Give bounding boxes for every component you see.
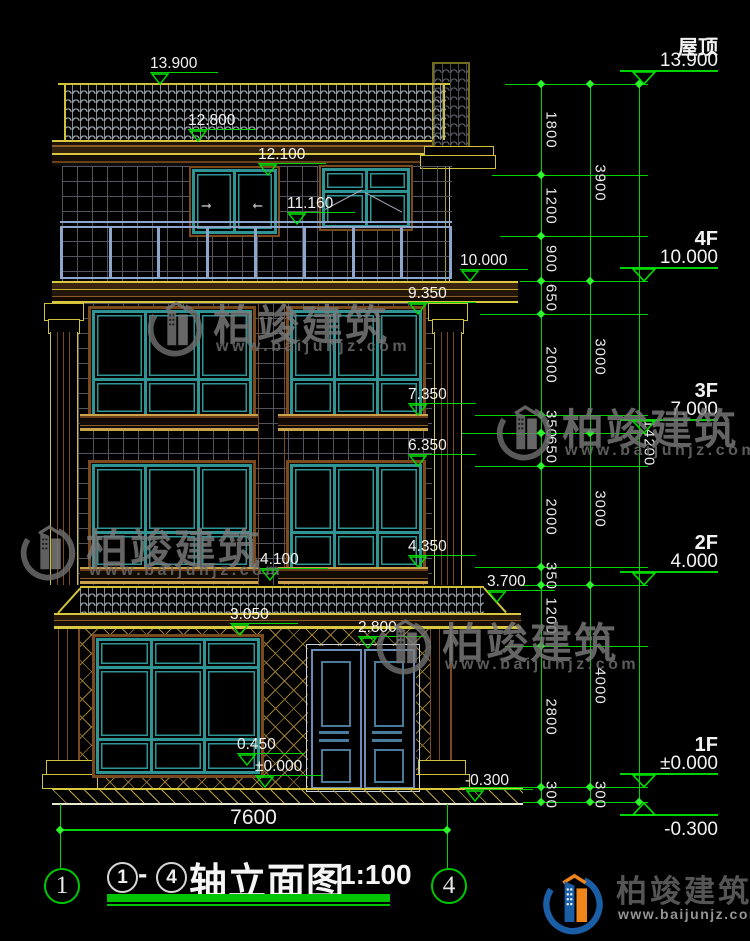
railing-post <box>109 228 112 278</box>
floor-elevation-value: 13.900 <box>660 50 718 72</box>
window-pane <box>99 641 150 666</box>
floor-elevation-value: -0.300 <box>664 819 718 841</box>
dimension-tick <box>537 171 545 179</box>
window-pane <box>336 467 376 531</box>
window-2f-left-glass <box>92 464 252 570</box>
window-pane <box>325 171 365 190</box>
footer-logo: 柏竣建筑 www.baijunjz.com <box>538 864 750 938</box>
window-pane <box>336 534 376 567</box>
dimension-label: 2000 <box>543 498 560 535</box>
window-pane <box>147 467 196 531</box>
spot-elevation-value: 12.100 <box>258 146 305 164</box>
window-3f-left <box>88 306 256 421</box>
spot-elevation-value: 13.900 <box>150 55 197 73</box>
slide-arrow-right-icon: ➞ <box>201 198 225 214</box>
spot-elevation-marker: 9.350 <box>408 285 480 315</box>
window-pane <box>99 741 150 771</box>
spot-elevation-marker: 13.900 <box>150 55 222 85</box>
dimension-extension-line <box>492 175 648 176</box>
level-triangle-icon <box>632 774 656 788</box>
railing-post <box>157 228 160 278</box>
window-3f-right-glass <box>290 310 422 417</box>
window-pane <box>95 381 144 414</box>
spot-elevation-marker: 7.350 <box>408 386 480 416</box>
spot-elevation-value: 3.050 <box>230 606 269 624</box>
watermark-url: www.baijunjz.com <box>565 442 750 460</box>
axis-bubble-right: 4 <box>431 868 467 904</box>
railing-top-rail <box>60 221 452 223</box>
level-triangle-icon <box>632 802 656 816</box>
railing-post <box>60 228 63 278</box>
title-underline-thick <box>107 894 390 902</box>
level-triangle-icon <box>632 268 656 282</box>
pilaster-1f-left <box>58 629 80 760</box>
window-pane <box>293 381 333 414</box>
railing-post <box>352 228 355 278</box>
dimension-label: 1800 <box>543 111 560 148</box>
spot-elevation-marker: 10.000 <box>460 252 532 282</box>
window-pane <box>200 534 249 567</box>
level-triangle-icon <box>288 213 306 225</box>
footer-brand: 柏竣建筑 <box>616 866 750 911</box>
window-pane <box>293 313 333 378</box>
level-triangle-icon <box>632 572 656 586</box>
spot-elevation-value: ±0.000 <box>255 758 302 776</box>
window-3f-right <box>286 306 426 421</box>
drawing-scale: 1:100 <box>340 859 412 891</box>
door-panel-upper <box>321 661 351 727</box>
door-panel-lower <box>374 749 404 783</box>
window-pane <box>293 467 333 531</box>
dimension-tick <box>586 277 594 285</box>
roof-pier <box>432 62 470 148</box>
level-triangle-icon <box>409 556 427 568</box>
roof-edge-left <box>64 85 66 140</box>
pilaster-1f-left-base2 <box>42 774 98 789</box>
dimension-tick <box>537 80 545 88</box>
axis-line-right <box>447 804 448 868</box>
window-1f-glass <box>96 638 260 774</box>
window-pane <box>147 534 196 567</box>
door-panel-band <box>372 731 402 734</box>
spot-elevation-marker: ±0.000 <box>255 758 327 788</box>
dimension-tick <box>537 642 545 650</box>
window-pane <box>200 381 249 414</box>
level-triangle-icon <box>189 130 207 142</box>
floor-level-marker: 屋顶13.900 <box>620 34 718 86</box>
spot-elevation-marker: 12.100 <box>258 146 330 176</box>
spot-elevation-marker: 3.050 <box>230 606 302 636</box>
spot-elevation-marker: 6.350 <box>408 437 480 467</box>
window-pane <box>206 641 257 666</box>
spot-elevation-value: 12.800 <box>188 112 235 130</box>
level-triangle-icon <box>632 71 656 85</box>
dimension-label: 2800 <box>543 698 560 735</box>
window-pane <box>147 381 196 414</box>
dimension-label: 650 <box>543 283 560 311</box>
dimension-label: 650 <box>543 435 560 463</box>
level-triangle-icon <box>409 404 427 416</box>
spot-elevation-marker: 12.800 <box>188 112 260 142</box>
window-3f-left-glass <box>92 310 252 417</box>
window-pane <box>200 313 249 378</box>
railing-post <box>254 228 257 278</box>
floor-level-marker: 1F±0.000 <box>620 737 718 789</box>
dimension-tick <box>537 232 545 240</box>
window-pane <box>153 741 204 771</box>
floor-elevation-value: ±0.000 <box>660 753 718 775</box>
floor-level-marker: 2F4.000 <box>620 535 718 587</box>
sill-3f-right <box>278 414 428 431</box>
spot-elevation-value: 6.350 <box>408 437 447 455</box>
level-triangle-icon <box>151 73 169 85</box>
dimension-extension-line <box>505 646 648 647</box>
dimension-tick <box>586 80 594 88</box>
awning-slope-left <box>57 588 81 614</box>
elevation-drawing-canvas: ➞ ➞ <box>0 0 750 941</box>
level-triangle-icon <box>632 420 656 434</box>
window-pane <box>379 313 419 378</box>
door-leaf-right <box>364 649 415 789</box>
overall-width-dim-value: 7600 <box>60 806 447 830</box>
axis-bubble-left: 1 <box>44 868 80 904</box>
spot-elevation-value: 9.350 <box>408 285 447 303</box>
pilaster-1f-right <box>430 629 452 760</box>
dimension-tick <box>586 581 594 589</box>
level-triangle-icon <box>359 637 377 649</box>
window-pane <box>200 467 249 531</box>
level-triangle-icon <box>256 776 274 788</box>
window-pane <box>153 669 204 738</box>
spot-elevation-value: 11.160 <box>287 195 333 213</box>
dimension-label: 3000 <box>592 490 609 527</box>
window-pane <box>147 313 196 378</box>
door-panel-band2 <box>372 739 402 742</box>
level-triangle-icon <box>238 754 256 766</box>
dimension-label: 1200 <box>543 187 560 224</box>
window-pane <box>336 381 376 414</box>
dimension-label: 300 <box>592 780 609 808</box>
baijun-logo-icon <box>538 866 608 936</box>
window-pane <box>95 313 144 378</box>
dimension-label: 3900 <box>592 164 609 201</box>
spot-elevation-value: 7.350 <box>408 386 447 404</box>
spot-elevation-marker: -0.300 <box>465 772 537 802</box>
window-pane <box>99 669 150 738</box>
title-axis-circle-to: 4 <box>156 862 187 893</box>
floor-elevation-value: 7.000 <box>670 399 718 421</box>
spot-elevation-marker: 2.800 <box>358 619 430 649</box>
level-triangle-icon <box>461 270 479 282</box>
floor-elevation-value: 4.000 <box>670 551 718 573</box>
title-axis-number: 1 <box>117 867 128 889</box>
pilaster-1f-left-base <box>46 760 94 775</box>
dimension-extension-line <box>480 314 648 315</box>
spot-elevation-marker: 3.700 <box>487 573 559 603</box>
level-triangle-icon <box>231 624 249 636</box>
dimension-label: 300 <box>543 780 560 808</box>
window-pane <box>95 534 144 567</box>
door-panel-band <box>319 731 349 734</box>
spot-elevation-marker: 4.350 <box>408 538 480 568</box>
spot-elevation-value: 4.100 <box>260 551 299 569</box>
sill-2f-left <box>80 567 258 584</box>
window-divider-trim-right <box>284 303 285 585</box>
spot-elevation-value: 10.000 <box>460 252 507 270</box>
window-pane <box>336 313 376 378</box>
dimension-extension-line <box>475 466 648 467</box>
window-divider-trim-left <box>258 303 259 585</box>
level-triangle-icon <box>259 164 277 176</box>
level-triangle-icon <box>261 569 279 581</box>
railing-post <box>206 228 209 278</box>
title-axis-number: 4 <box>166 867 177 889</box>
axis-number: 1 <box>56 872 69 900</box>
title-underline-thin <box>107 904 390 906</box>
level-triangle-icon <box>466 790 484 802</box>
level-triangle-icon <box>488 591 506 603</box>
dimension-label: 3000 <box>592 338 609 375</box>
pilaster-1f-right-base <box>418 760 466 775</box>
spot-elevation-marker: 4.100 <box>260 551 332 581</box>
floor-level-marker: 3F7.000 <box>620 383 718 435</box>
dimension-label: 900 <box>543 244 560 272</box>
ground-line <box>52 803 523 805</box>
footer-url: www.baijunjz.com <box>618 906 750 922</box>
railing-post <box>449 228 452 278</box>
floor-elevation-value: 10.000 <box>660 247 718 269</box>
roof-cornice-band <box>52 140 432 166</box>
floor-level-marker: -0.300 <box>620 800 718 852</box>
sill-3f-left <box>80 414 258 431</box>
spot-elevation-value: 2.800 <box>358 619 397 637</box>
window-pane <box>153 641 204 666</box>
level-triangle-icon <box>409 455 427 467</box>
floor-level-marker: 4F10.000 <box>620 231 718 283</box>
railing-post <box>303 228 306 278</box>
spot-elevation-value: 4.350 <box>408 538 447 556</box>
pilaster-left-shaft <box>50 332 78 585</box>
spot-elevation-marker: 11.160 <box>287 195 359 225</box>
window-pane <box>206 669 257 738</box>
spot-elevation-value: 3.700 <box>487 573 526 591</box>
window-pane <box>379 467 419 531</box>
door-panel-band2 <box>319 739 349 742</box>
window-pane <box>368 171 408 190</box>
dimension-tick <box>586 429 594 437</box>
window-2f-left <box>88 460 256 574</box>
slide-arrow-left-icon: ➞ <box>239 198 263 214</box>
title-axis-circle-from: 1 <box>107 862 138 893</box>
railing-post <box>400 228 403 278</box>
spot-elevation-value: 0.450 <box>237 736 276 754</box>
axis-number: 4 <box>443 872 456 900</box>
title-dash: - <box>138 858 147 890</box>
balcony-railing <box>60 221 452 281</box>
window-pane <box>95 467 144 531</box>
door-panel-upper <box>374 661 404 727</box>
watermark-url: www.baijunjz.com <box>445 656 639 674</box>
spot-elevation-value: -0.300 <box>465 772 509 790</box>
level-triangle-icon <box>409 303 427 315</box>
dimension-label: 4000 <box>592 667 609 704</box>
dimension-label: 2000 <box>543 346 560 383</box>
